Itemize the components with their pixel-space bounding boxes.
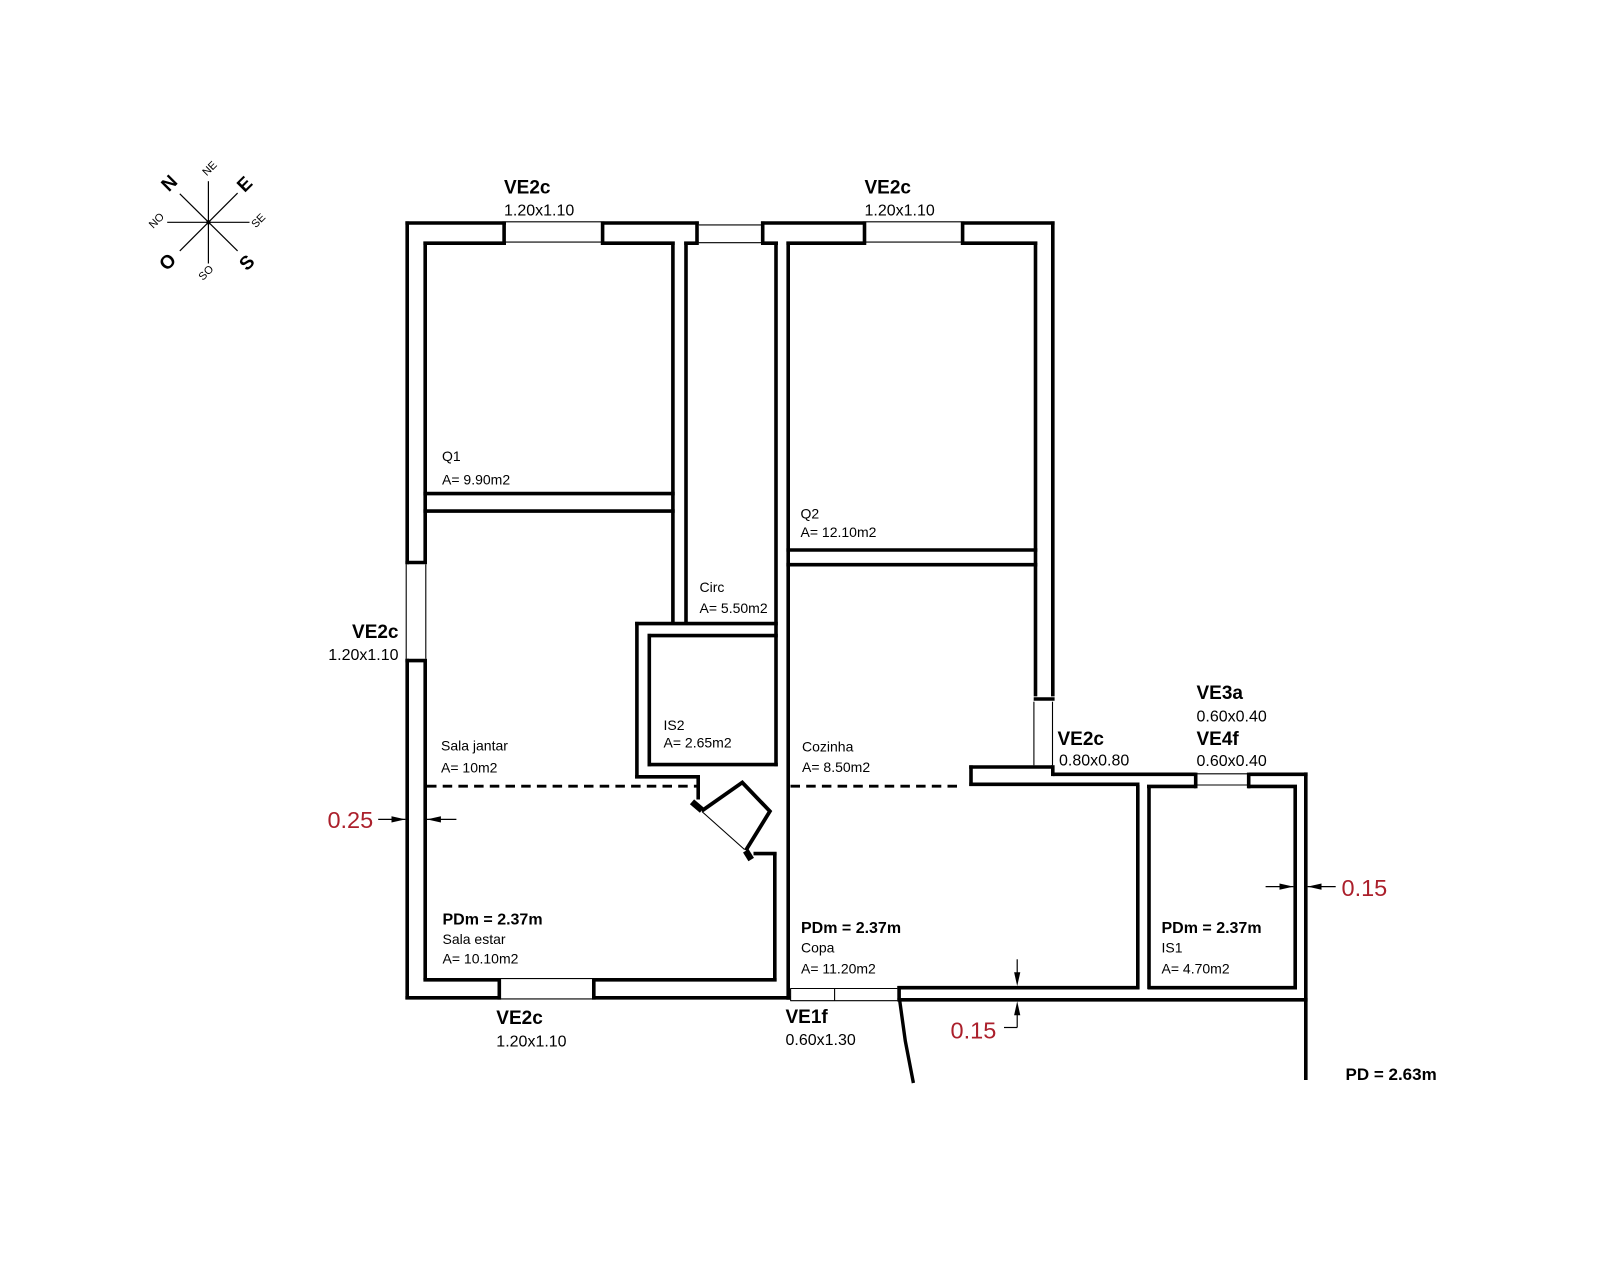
svg-text:0.60x1.30: 0.60x1.30 [786, 1032, 856, 1049]
svg-text:VE2c: VE2c [1058, 729, 1105, 750]
svg-text:Sala jantar: Sala jantar [441, 738, 508, 754]
svg-text:1.20x1.10: 1.20x1.10 [504, 202, 574, 219]
svg-text:1.20x1.10: 1.20x1.10 [865, 202, 935, 219]
svg-text:Q2: Q2 [801, 506, 820, 522]
svg-text:0.15: 0.15 [1342, 875, 1388, 901]
svg-text:VE2c: VE2c [352, 622, 399, 643]
svg-text:A= 4.70m2: A= 4.70m2 [1162, 961, 1230, 977]
svg-text:PD = 2.63m: PD = 2.63m [1346, 1065, 1437, 1084]
svg-text:1.20x1.10: 1.20x1.10 [328, 647, 398, 664]
svg-text:VE2c: VE2c [865, 178, 912, 199]
svg-text:Circ: Circ [700, 579, 725, 595]
svg-text:Sala estar: Sala estar [443, 931, 506, 947]
svg-text:0.25: 0.25 [327, 807, 373, 833]
svg-text:VE3a: VE3a [1197, 683, 1244, 704]
svg-text:0.60x0.40: 0.60x0.40 [1197, 753, 1267, 770]
svg-text:Q1: Q1 [442, 448, 461, 464]
svg-text:A= 8.50m2: A= 8.50m2 [802, 759, 870, 775]
svg-text:IS1: IS1 [1162, 940, 1183, 956]
svg-text:A= 2.65m2: A= 2.65m2 [664, 735, 732, 751]
svg-text:PDm = 2.37m: PDm = 2.37m [443, 912, 543, 929]
svg-text:A= 9.90m2: A= 9.90m2 [442, 472, 510, 488]
svg-text:A= 10.10m2: A= 10.10m2 [443, 951, 519, 967]
svg-text:0.60x0.40: 0.60x0.40 [1197, 709, 1267, 726]
svg-text:A= 5.50m2: A= 5.50m2 [700, 600, 768, 616]
svg-text:Copa: Copa [801, 940, 835, 956]
svg-text:0.15: 0.15 [951, 1018, 997, 1044]
svg-text:VE2c: VE2c [504, 178, 551, 199]
svg-text:PDm = 2.37m: PDm = 2.37m [1162, 920, 1262, 937]
svg-text:IS2: IS2 [664, 717, 685, 733]
svg-text:VE2c: VE2c [496, 1008, 543, 1029]
svg-text:A= 11.20m2: A= 11.20m2 [801, 961, 876, 977]
svg-text:0.80x0.80: 0.80x0.80 [1059, 753, 1129, 770]
svg-text:PDm = 2.37m: PDm = 2.37m [801, 920, 901, 937]
svg-text:1.20x1.10: 1.20x1.10 [496, 1033, 566, 1050]
svg-text:A= 10m2: A= 10m2 [441, 760, 498, 776]
svg-text:VE4f: VE4f [1197, 729, 1240, 750]
svg-text:A= 12.10m2: A= 12.10m2 [801, 524, 877, 540]
svg-text:Cozinha: Cozinha [802, 739, 854, 755]
svg-text:VE1f: VE1f [786, 1007, 829, 1028]
